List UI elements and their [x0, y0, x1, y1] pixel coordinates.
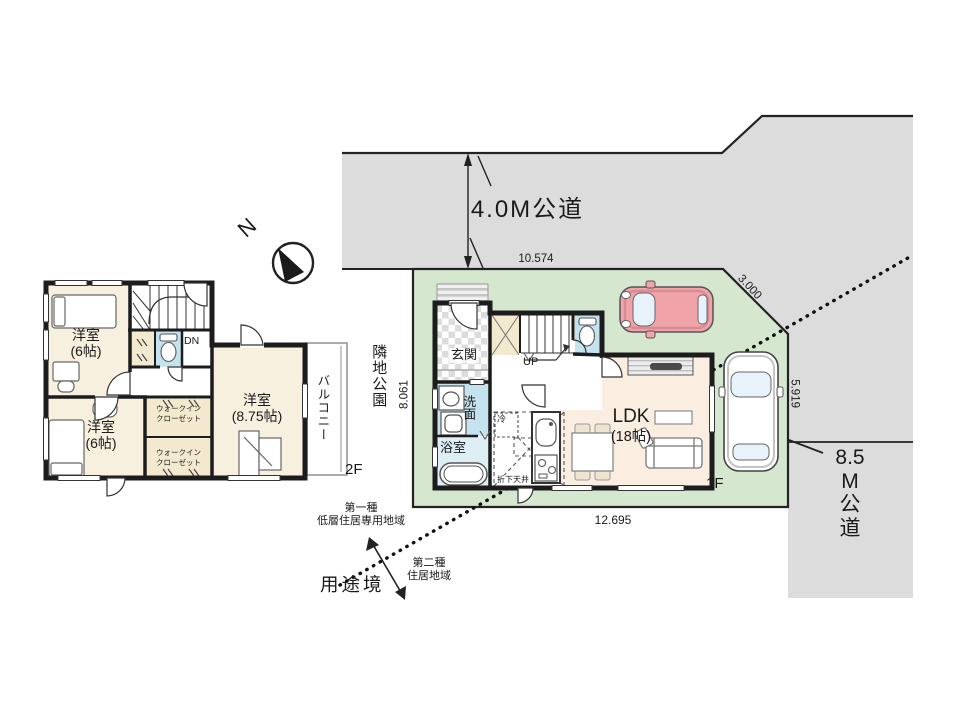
car-white — [719, 352, 783, 471]
bedroom3-label: 洋室 (8.75帖) — [222, 392, 292, 424]
toilet-icon — [160, 334, 177, 362]
dimension-right: 5.919 — [787, 372, 800, 416]
bathtub-icon — [440, 463, 487, 485]
plan-drawing — [0, 0, 960, 720]
dimension-top: 10.574 — [498, 253, 574, 266]
ldk-label: LDK (18帖) — [598, 406, 664, 446]
stair-up-label: UP — [523, 356, 538, 369]
toilet-icon — [579, 318, 596, 346]
zone1-label: 第一種 低層住居専用地域 — [310, 502, 412, 527]
desk — [239, 431, 281, 477]
road-right-label: 8.5 M 公 道 — [827, 446, 873, 540]
car-red — [620, 281, 713, 338]
stove-icon — [535, 455, 557, 481]
bedroom2-label: 洋室 (6帖) — [73, 419, 129, 451]
dropped-ceiling-label: 折下天井 — [497, 475, 529, 484]
bed-double — [52, 295, 116, 328]
wic1-label: ウォークイン クローゼット — [148, 404, 209, 424]
entrance-label: 玄関 — [449, 348, 479, 363]
floorplan-scene: 4.0M公道 8.5 M 公 道 10.574 3.000 5.919 8.06… — [0, 0, 960, 720]
wic2-label: ウォークイン クローゼット — [148, 448, 209, 468]
kitchen-sink-icon — [536, 419, 556, 446]
park-label: 隣地公園 — [370, 344, 387, 408]
bath-label: 浴室 — [440, 441, 466, 456]
staircase-up — [521, 315, 573, 360]
floor2-label: 2F — [345, 461, 363, 478]
use-boundary-label: 用途境 — [320, 574, 385, 595]
washroom-label: 洗面 — [461, 395, 475, 420]
floor2-closet-floor — [131, 331, 155, 367]
kitchen-counter — [532, 412, 560, 483]
north-compass — [273, 243, 313, 283]
floor1-label: 1F — [706, 475, 724, 492]
bedroom1-label: 洋室 (6帖) — [58, 327, 114, 359]
dimension-bottom: 12.695 — [577, 514, 649, 528]
road-top-label: 4.0M公道 — [450, 196, 605, 224]
balcony-label: バルコニー — [315, 374, 329, 442]
dimension-left: 8.061 — [398, 373, 411, 417]
fridge-label: 冷 — [497, 414, 506, 424]
tv-board-icon — [628, 357, 693, 375]
zone2-label: 第二種 住居地域 — [396, 557, 462, 582]
stair-down-label: DN — [184, 335, 199, 347]
